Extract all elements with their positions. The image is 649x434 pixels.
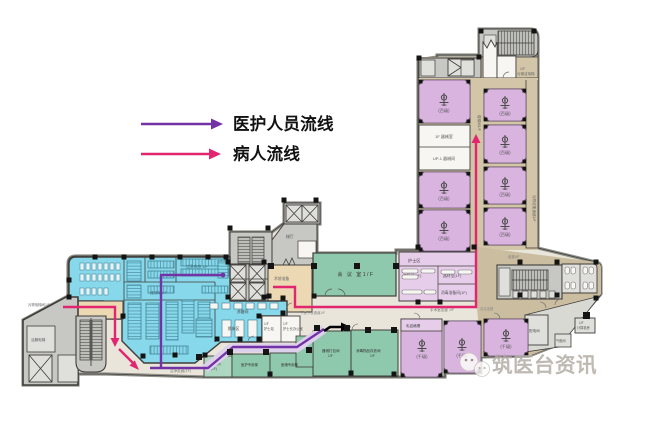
svg-text:洁净库房 1/F: 洁净库房 1/F [186,264,208,269]
svg-text:(百级): (百级) [499,231,511,238]
svg-text:换床区: 换床区 [228,326,240,331]
svg-text:1/F: 1/F [264,322,269,326]
svg-text:污物收集通道1/F: 污物收集通道1/F [532,195,537,223]
svg-text:(百级): (百级) [438,107,450,114]
svg-text:1/F: 1/F [283,322,288,326]
svg-text:乳癌格栅: 乳癌格栅 [406,323,421,328]
svg-text:(百级): (百级) [499,110,511,117]
svg-text:消毒准备间(1F): 消毒准备间(1F) [441,290,468,295]
svg-text:1/F: 1/F [328,354,333,358]
svg-text:洁净走廊(1F): 洁净走廊(1F) [170,368,191,373]
svg-text:医护专用梯: 医护专用梯 [241,362,259,367]
svg-text:气瓶间: 气瓶间 [556,338,566,343]
svg-text:(百级): (百级) [499,149,511,156]
svg-text:UP-1 器械间: UP-1 器械间 [433,155,455,161]
svg-text:护士长办公室: 护士长办公室 [283,326,303,331]
svg-text:护士站: 护士站 [264,326,275,331]
svg-text:1F 器械室: 1F 器械室 [435,133,453,139]
svg-text:病人流线: 病人流线 [233,144,300,164]
svg-text:污梯洁电梯: 污梯洁电梯 [517,71,535,76]
svg-text:1/F: 1/F [579,321,584,325]
svg-text:器械库 1/F: 器械库 1/F [150,290,168,295]
svg-text:清洁走廊: 清洁走廊 [480,306,494,311]
svg-text:污物电梯间1/F: 污物电梯间1/F [28,302,50,307]
svg-text:医护人员流线: 医护人员流线 [233,114,334,134]
svg-text:配电间: 配电间 [529,328,540,333]
svg-text:下送下收通道1/F: 下送下收通道1/F [300,310,325,315]
svg-text:苏醒间: 苏醒间 [237,309,249,314]
svg-text:(百级): (百级) [499,191,511,198]
svg-text:1/F: 1/F [520,67,525,71]
svg-text:医辅专用梯: 医辅专用梯 [281,362,299,367]
svg-text:(百级): (百级) [438,195,450,202]
svg-text:(千级): (千级) [500,343,512,350]
svg-text:护士区: 护士区 [408,257,421,264]
svg-text:1/F: 1/F [370,354,375,358]
svg-text:(百级): (百级) [438,235,450,242]
svg-text:走道1/F: 走道1/F [508,254,519,259]
svg-text:器械打包间: 器械打包间 [322,348,340,353]
svg-text:活服电梯: 活服电梯 [31,337,46,342]
svg-text:梯厅: 梯厅 [286,234,294,239]
svg-text:术前准备: 术前准备 [274,276,289,281]
svg-text:会 议 室1/F: 会 议 室1/F [337,271,374,278]
svg-text:(千级): (千级) [416,353,428,360]
svg-text:消毒物品存放间: 消毒物品存放间 [356,348,381,353]
svg-text:计算机房: 计算机房 [577,325,590,330]
svg-text:筑医台资讯: 筑医台资讯 [492,353,597,377]
svg-text:楼梯间1/F: 楼梯间1/F [477,115,482,132]
